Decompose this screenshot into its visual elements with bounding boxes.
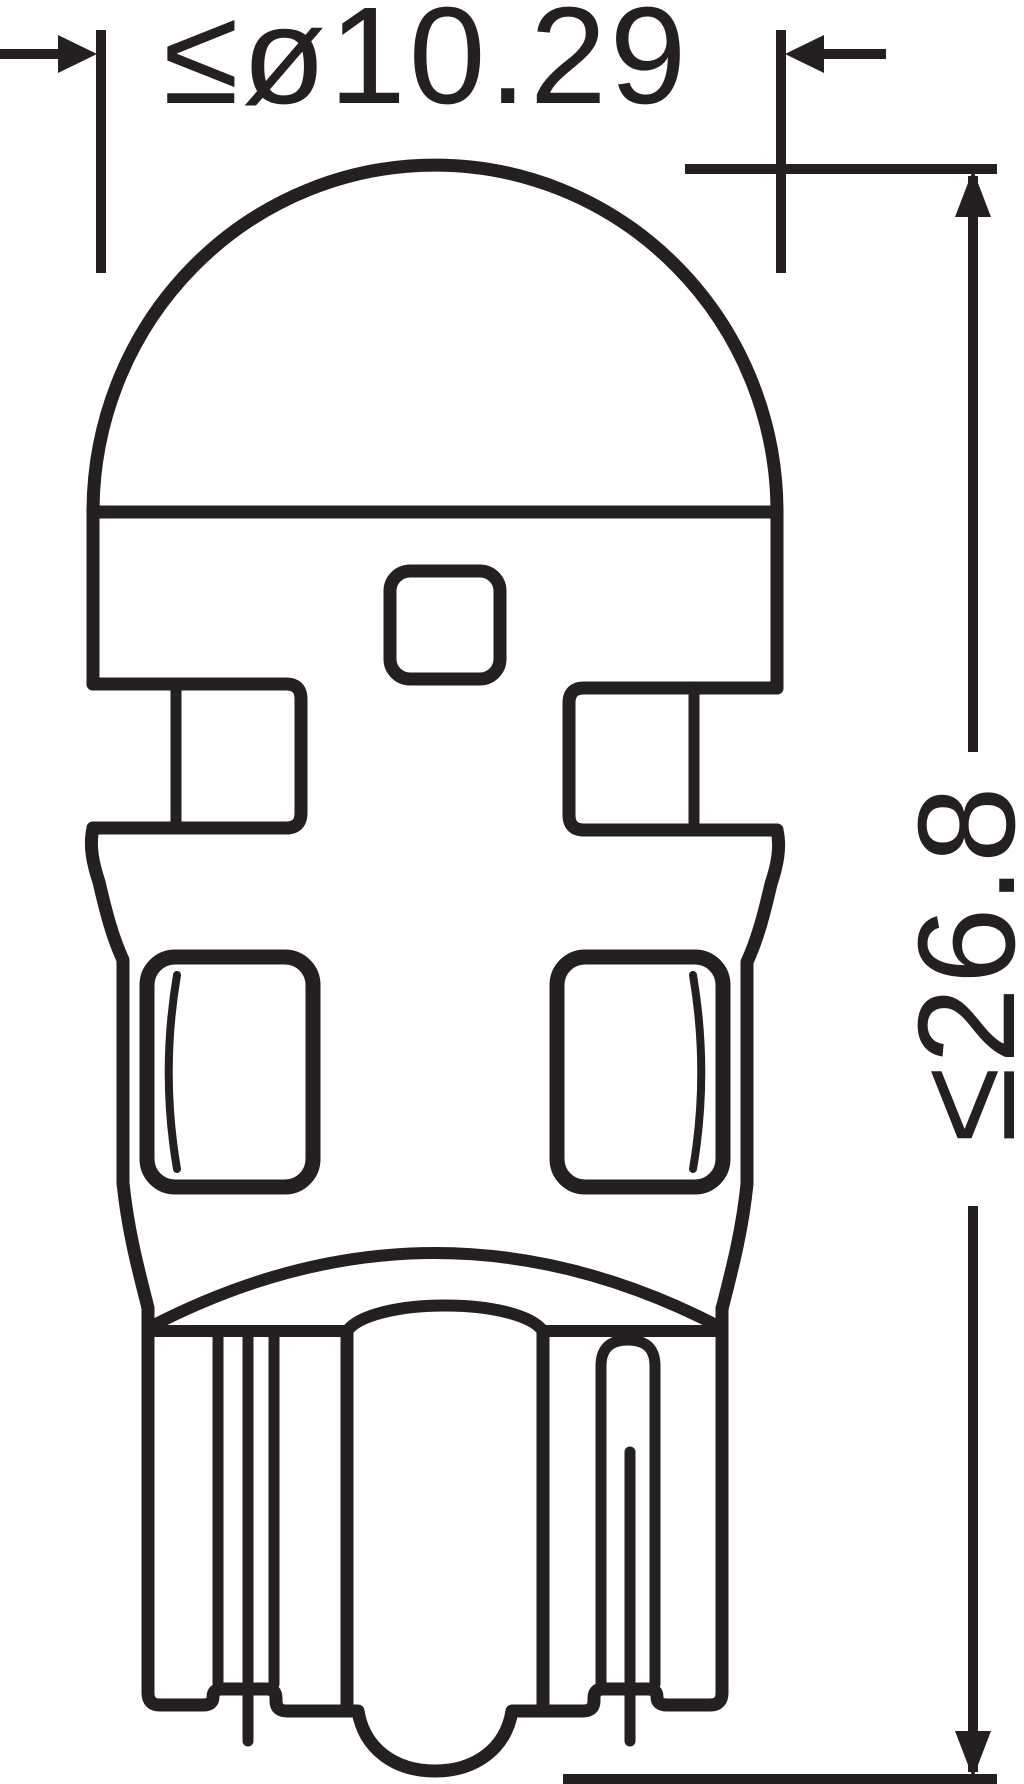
height-label: ≤26.8 xyxy=(890,783,1024,1142)
side-notch-left xyxy=(93,684,301,828)
bulb-outline xyxy=(91,165,778,1771)
center-square-hole xyxy=(390,571,500,679)
led-window-right-inner-line xyxy=(693,975,701,1169)
led-window-left-inner-line xyxy=(169,975,177,1169)
base-saddle-arc xyxy=(150,1253,720,1327)
base-top-line-with-bump xyxy=(148,1306,722,1332)
dome-arc xyxy=(93,165,777,512)
side-notch-right xyxy=(569,688,777,830)
arrow-up-icon xyxy=(955,170,991,217)
arrow-right-icon xyxy=(58,35,97,73)
drawing-root: ≤ø10.29 ≤26.8 xyxy=(0,0,1024,1779)
diameter-label: ≤ø10.29 xyxy=(163,0,689,133)
bulb-technical-drawing-page: ≤ø10.29 ≤26.8 xyxy=(0,0,1024,1784)
bulb-technical-drawing: ≤ø10.29 ≤26.8 xyxy=(0,0,1024,1784)
arrow-down-icon xyxy=(955,1731,991,1778)
arrow-left-icon xyxy=(785,35,824,73)
wedge-base-profile xyxy=(148,1308,722,1771)
